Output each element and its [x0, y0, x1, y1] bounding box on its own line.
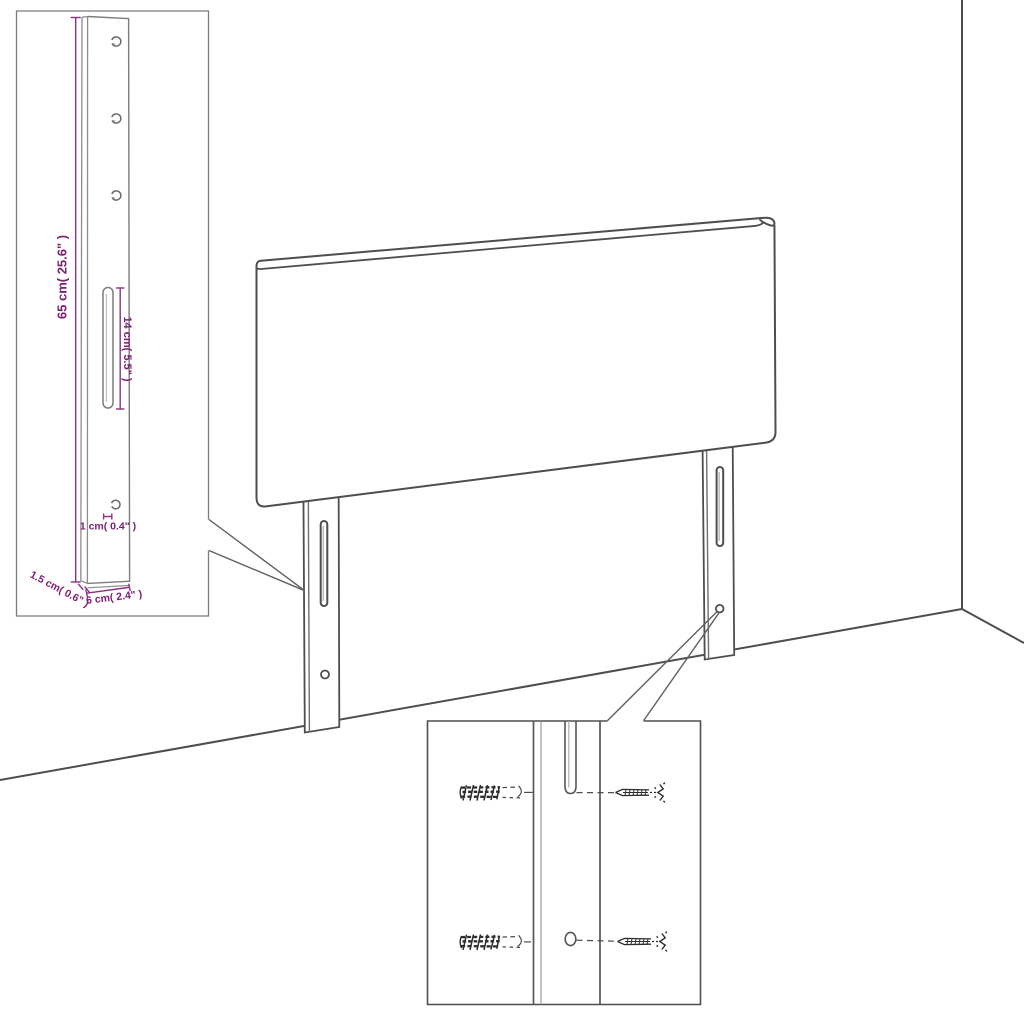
svg-text:1 cm( 0.4" ): 1 cm( 0.4" ) [80, 521, 136, 533]
svg-text:65 cm( 25.6" ): 65 cm( 25.6" ) [55, 235, 70, 319]
svg-text:14 cm( 5.5" ): 14 cm( 5.5" ) [121, 316, 133, 381]
